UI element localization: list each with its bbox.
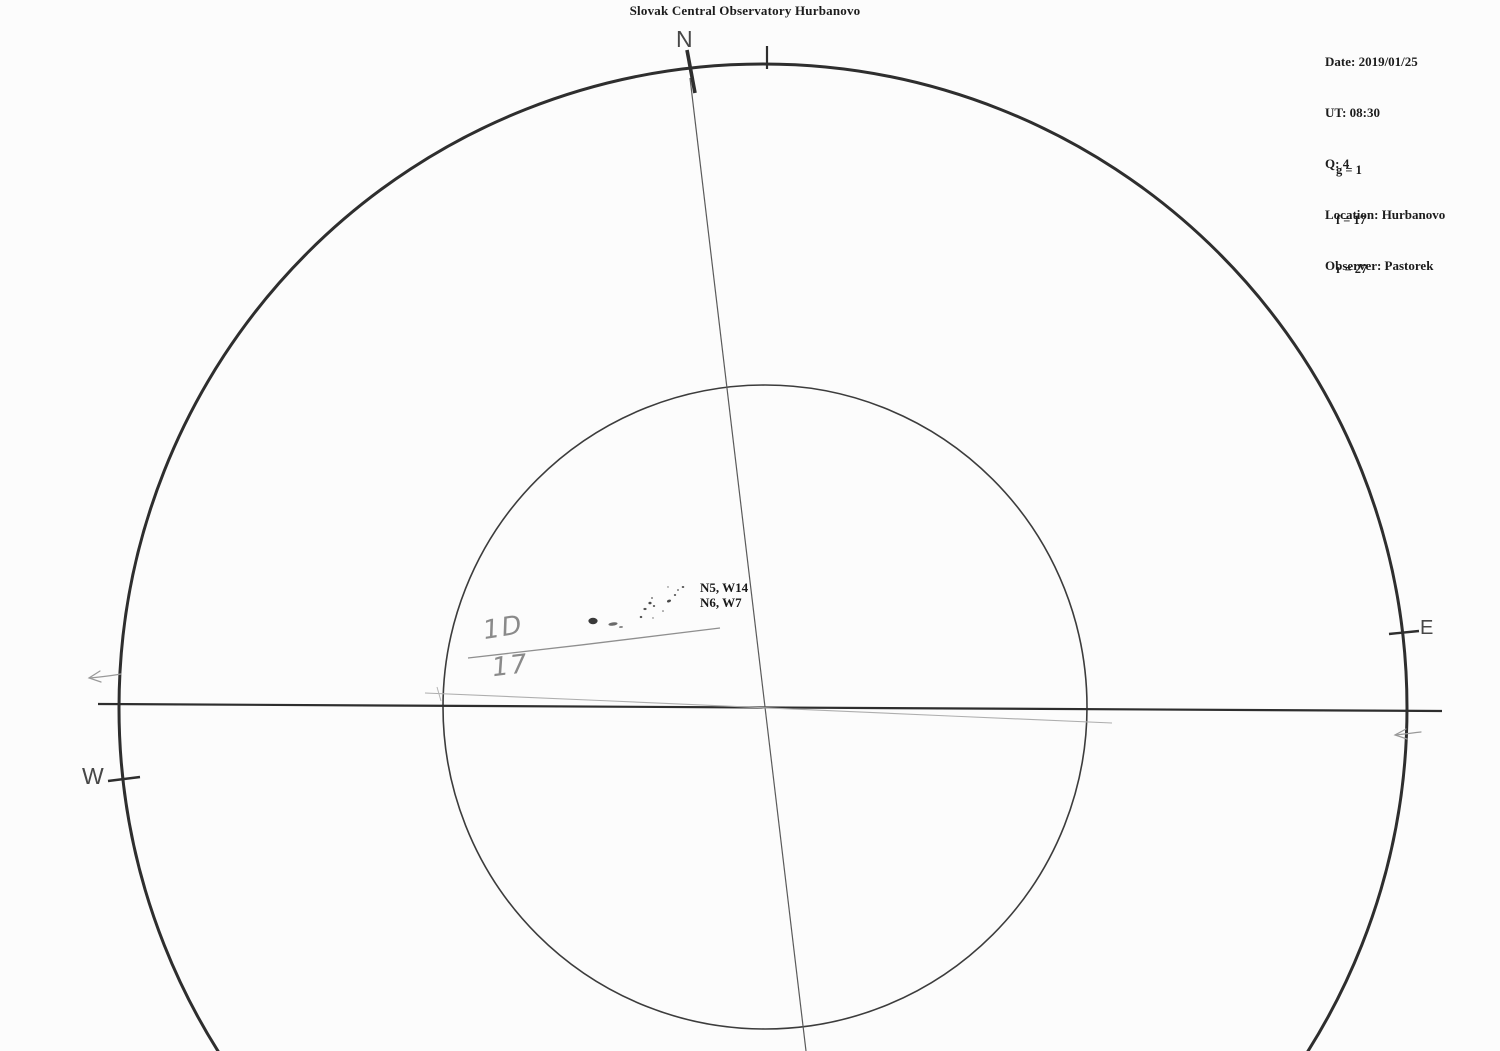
solar-disk-drawing — [0, 0, 1500, 1051]
sunspot — [648, 602, 651, 605]
count-spots: f = 17 — [1336, 212, 1367, 229]
sunspot — [652, 617, 654, 618]
compass-east-label: E — [1420, 617, 1433, 640]
sunspot — [662, 610, 664, 612]
sunspot-group — [588, 586, 684, 628]
sunspot — [653, 605, 655, 607]
count-relative-number: r = 27 — [1336, 261, 1367, 278]
solar-disk-circle — [119, 64, 1407, 1051]
header-date: Date: 2019/01/25 — [1325, 53, 1445, 70]
sunspot — [651, 597, 653, 599]
pencil-arrow-west — [89, 671, 121, 682]
sunspot — [619, 626, 623, 629]
solar-rotation-axis-line — [690, 78, 806, 1051]
sunspot — [674, 594, 676, 596]
sunspot — [677, 589, 679, 591]
compass-north-label: N — [676, 26, 693, 53]
sunspot — [640, 616, 643, 618]
east-tick — [1389, 631, 1419, 634]
sunspot — [667, 599, 672, 603]
sunspot — [588, 618, 597, 624]
sunspot — [682, 586, 685, 588]
header-ut: UT: 08:30 — [1325, 104, 1445, 121]
handwritten-spot-count: 17 — [490, 649, 530, 683]
observation-sheet: Slovak Central Observatory Hurbanovo Dat… — [0, 0, 1500, 1051]
group-coordinates-line1: N5, W14 — [700, 580, 748, 595]
sunspot — [667, 586, 669, 587]
compass-west-label: W — [82, 763, 104, 790]
handwritten-group-type: 1D — [481, 610, 526, 646]
group-coordinates-line2: N6, W7 — [700, 595, 742, 610]
count-groups: g = 1 — [1336, 162, 1367, 179]
sunspot — [608, 622, 618, 627]
page-title: Slovak Central Observatory Hurbanovo — [560, 3, 930, 19]
sunspot — [643, 608, 646, 610]
sunspot-counts: g = 1 f = 17 r = 27 — [1336, 129, 1367, 311]
